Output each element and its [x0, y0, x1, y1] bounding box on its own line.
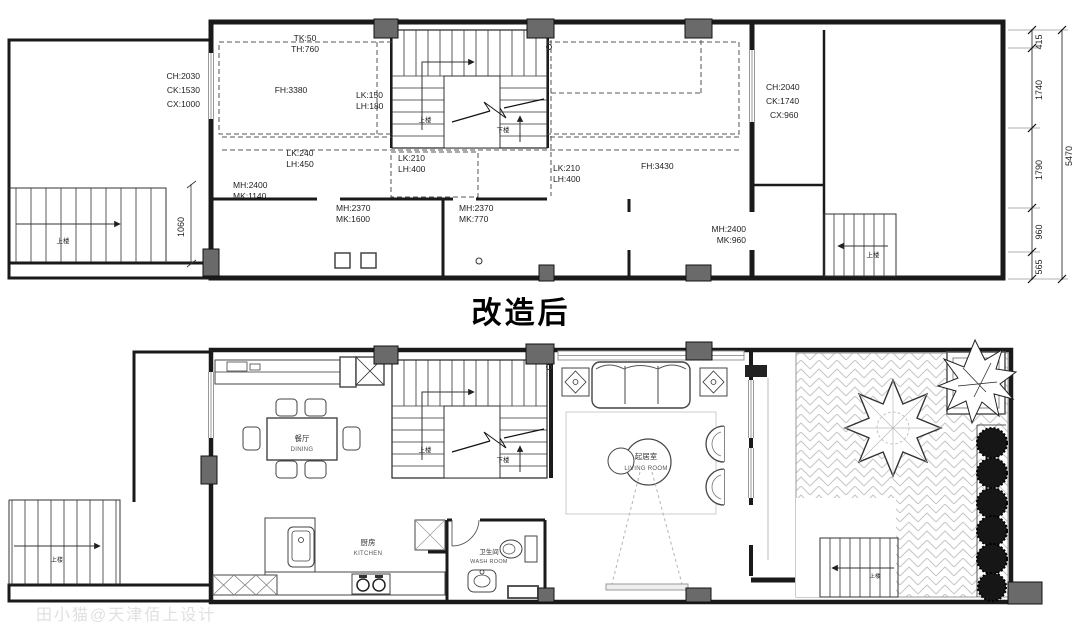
- dining-label-zh: 餐厅: [295, 434, 310, 443]
- dim-415: 415: [1034, 34, 1044, 49]
- living-label-zh: 起居室: [635, 451, 658, 461]
- ann-lk2b: LH:450: [286, 159, 314, 169]
- ann-chl2: CK:1530: [167, 85, 200, 95]
- dining-label-en: DINING: [291, 447, 314, 453]
- plan-drawing: TK:50 TH:760 FH:3380 LK:150 LH:180 LK:24…: [0, 0, 1080, 641]
- washroom-label-zh: 卫生间: [479, 547, 499, 556]
- tree-planter: [938, 340, 1016, 423]
- ann-lk3a: LK:210: [398, 153, 425, 163]
- upper-floor-plan: TK:50 TH:760 FH:3380 LK:150 LH:180 LK:24…: [9, 19, 1074, 283]
- stair-down-label: 下楼: [497, 125, 511, 134]
- lower-left-staircase: [9, 500, 120, 585]
- ann-mh1a: MH:2400: [233, 180, 268, 190]
- ann-mh2a: MH:2370: [336, 203, 371, 213]
- dim-1060-label: 1060: [176, 217, 186, 237]
- ann-chl1: CH:2030: [166, 71, 200, 81]
- dim-chain-right: 415 1740 1790 960 565 5470: [1008, 26, 1074, 283]
- ann-lk1a: LK:150: [356, 90, 383, 100]
- ann-mh2b: MK:1600: [336, 214, 370, 224]
- ann-th: TH:760: [291, 44, 319, 54]
- kitchen-label-en: KITCHEN: [354, 551, 382, 557]
- stair-up-label: 上楼: [419, 445, 433, 454]
- ann-mh4a: MH:2400: [712, 224, 747, 234]
- ann-mh3a: MH:2370: [459, 203, 494, 213]
- watermark: 田小猫@天津佰上设计: [36, 606, 216, 624]
- ann-chr2: CK:1740: [766, 96, 799, 106]
- ann-lk4b: LH:400: [553, 174, 581, 184]
- kitchen-label-zh: 厨房: [361, 537, 376, 547]
- parasol-umbrella: [845, 380, 941, 476]
- dim-5470: 5470: [1064, 146, 1074, 166]
- stair-up-label: 上楼: [867, 250, 881, 259]
- dim-1740: 1740: [1034, 80, 1044, 100]
- lower-central-staircase: [392, 360, 552, 478]
- upper-left-staircase: [9, 188, 166, 263]
- ann-mh3b: MK:770: [459, 214, 489, 224]
- kitchen-fixtures: [213, 518, 447, 595]
- ann-chr1: CH:2040: [766, 82, 800, 92]
- window-left-wall: [207, 53, 215, 119]
- ann-lk2a: LK:240: [287, 148, 314, 158]
- upper-right-staircase: [824, 214, 896, 276]
- dim-1790: 1790: [1034, 160, 1044, 180]
- ann-fh-right: FH:3430: [641, 161, 674, 171]
- ann-lk3b: LH:400: [398, 164, 426, 174]
- ann-lk4a: LK:210: [553, 163, 580, 173]
- plan-title: 改造后: [472, 297, 571, 330]
- stair-up-label: 上楼: [419, 115, 433, 124]
- ann-fh-left: FH:3380: [275, 85, 308, 95]
- upper-central-staircase: [392, 30, 552, 148]
- ann-mh1b: MK:1140: [233, 191, 267, 201]
- living-room-furniture: [562, 362, 727, 590]
- terrace: [796, 340, 1016, 601]
- lower-floor-plan: 餐厅 DINING 厨房 KITCHEN 卫生间 WASH ROOM 起居室 L…: [9, 340, 1042, 604]
- living-label-en: LIVING ROOM: [624, 466, 667, 472]
- stair-down-label: 下楼: [497, 455, 511, 464]
- stair-up-label: 上楼: [57, 236, 71, 245]
- stair-up-label: 上楼: [869, 572, 881, 580]
- ann-chl3: CX:1000: [167, 99, 200, 109]
- ann-lk1b: LH:180: [356, 101, 384, 111]
- floor-plan-sheet: TK:50 TH:760 FH:3380 LK:150 LH:180 LK:24…: [0, 0, 1080, 641]
- ann-chr3: CX:960: [770, 110, 799, 120]
- dining-cabinets: [215, 357, 384, 387]
- dim-1060: 1060: [176, 181, 196, 267]
- washroom-label-en: WASH ROOM: [470, 559, 508, 565]
- stair-up-label: 上楼: [51, 556, 63, 564]
- dim-565: 565: [1034, 259, 1044, 274]
- dim-960: 960: [1034, 224, 1044, 239]
- ann-mh4b: MK:960: [717, 235, 747, 245]
- upper-fixtures: [335, 253, 482, 268]
- ann-tk: TK:50: [294, 33, 317, 43]
